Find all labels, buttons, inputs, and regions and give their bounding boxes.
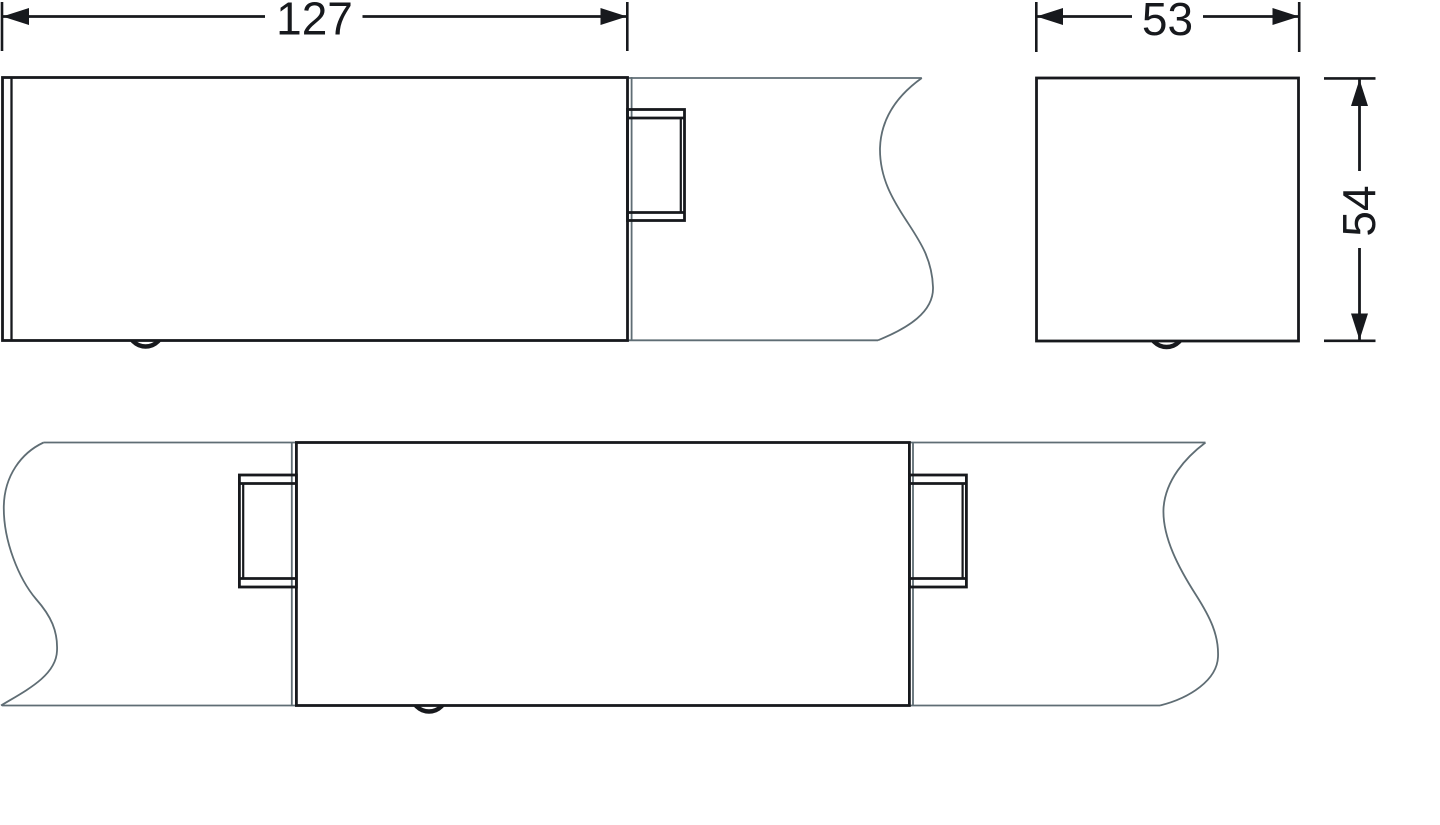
svg-text:127: 127	[276, 0, 353, 45]
svg-text:54: 54	[1333, 185, 1385, 236]
svg-text:53: 53	[1142, 0, 1193, 45]
